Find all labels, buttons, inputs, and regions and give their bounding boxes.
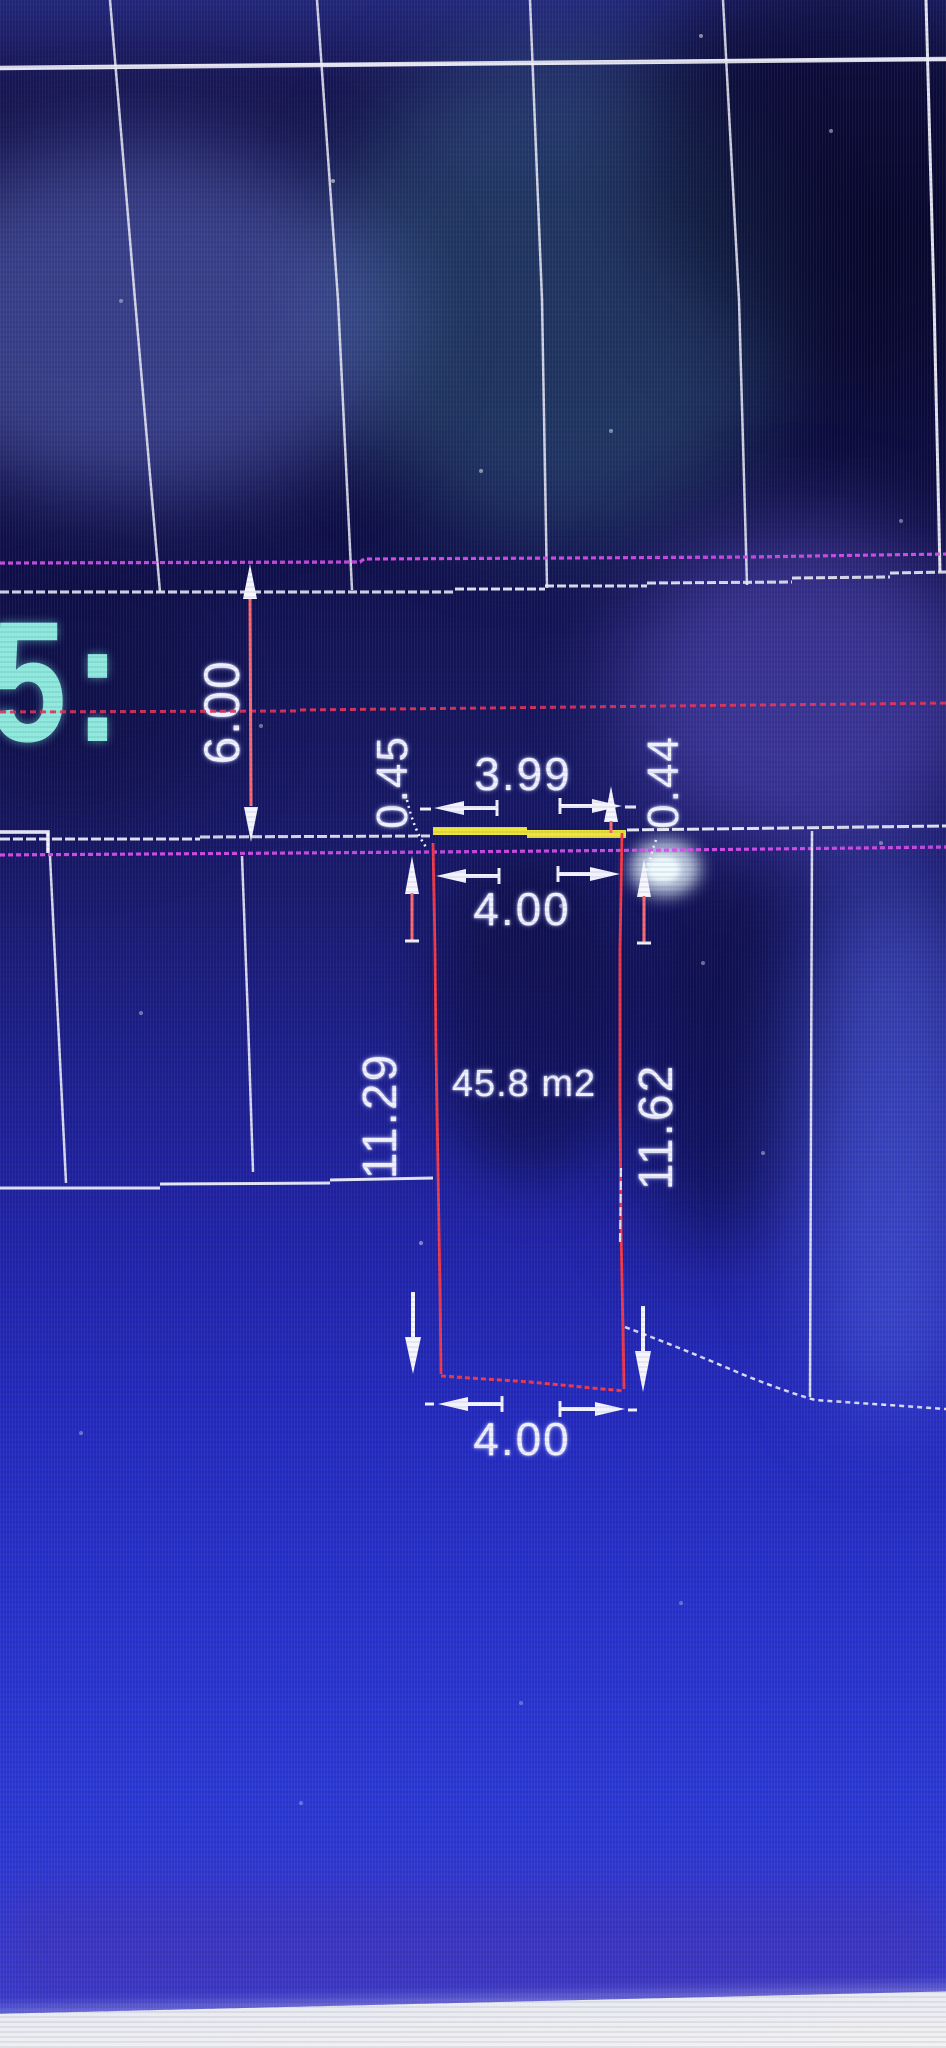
dim-offset-left-0-45: 0.45 [371, 735, 415, 829]
dim-top-outer-3-99: 3.99 [474, 751, 572, 797]
dim-bottom-4-00: 4.00 [473, 1416, 571, 1462]
dim-side-right-11-62: 11.62 [633, 1064, 681, 1191]
cad-screen-photo: 5: 6.00 0.45 3.99 0.44 4.00 11.29 45.8 m… [0, 0, 946, 2048]
dim-offset-right-0-44: 0.44 [642, 735, 686, 829]
flash-glare-core [646, 856, 680, 882]
dim-road-width-6-00: 6.00 [197, 659, 247, 764]
parcel-area-label: 45.8 m2 [452, 1065, 596, 1103]
plot-number-label: 5: [0, 596, 128, 768]
dim-side-left-11-29: 11.29 [357, 1053, 405, 1180]
dust-speckles [0, 0, 2, 2]
shade-bottom-edge [0, 1880, 946, 2010]
dim-top-inner-4-00: 4.00 [473, 886, 571, 932]
